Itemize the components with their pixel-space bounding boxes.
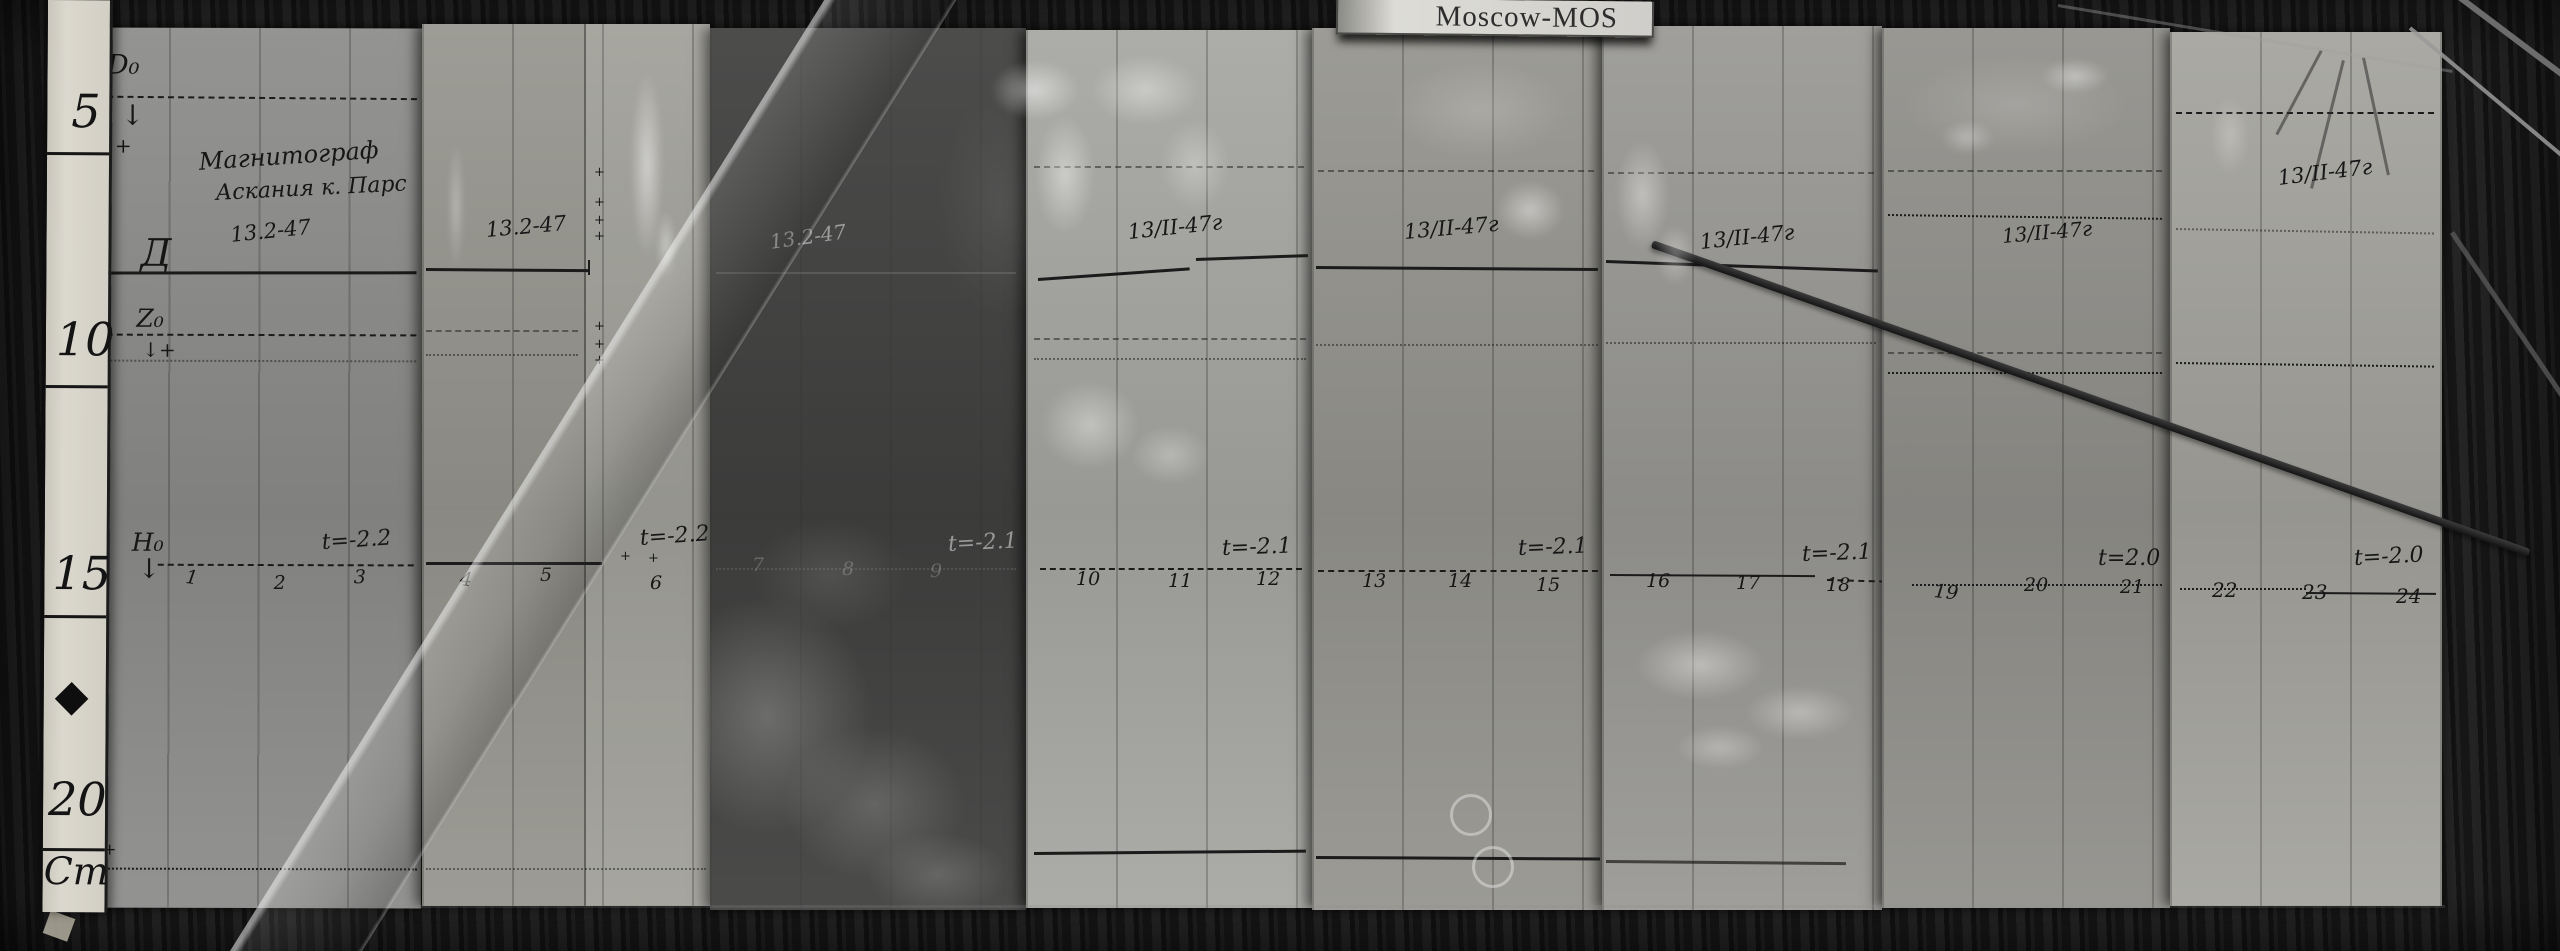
z-baseline-line: [1034, 338, 1306, 340]
z-baseline-line: [1888, 352, 2162, 354]
down-arrow-mark: ↓: [121, 102, 145, 130]
h-baseline-line: [2180, 588, 2306, 590]
hour-number: 11: [1168, 572, 1192, 591]
h-baseline-line: [426, 562, 602, 565]
temperature-note: t=-2.1: [1802, 542, 1872, 566]
record-strip-4: 13/II-47г t=-2.1 10 11 12: [1026, 30, 1312, 908]
punch-hole: [1472, 846, 1514, 888]
hour-number: 21: [2120, 578, 2144, 597]
registration-mark: +: [594, 354, 605, 367]
hour-number: 10: [1076, 570, 1100, 589]
d-trace-line: [1196, 254, 1308, 261]
temperature-note: t=-2.2: [639, 523, 710, 550]
hour-number: 12: [1256, 570, 1280, 589]
d-baseline-line: [1318, 170, 1594, 172]
ruler-scale: 5 10 15 20 ◆ Cm: [38, 0, 113, 912]
ruler-tick-line: [46, 385, 108, 388]
d-trace-line: [1038, 267, 1190, 281]
h0-baseline-label: H₀: [132, 530, 164, 555]
registration-mark: +: [594, 214, 605, 227]
bottom-trace-line: [97, 868, 417, 871]
bottom-trace-line: [1606, 860, 1846, 865]
wire: [2444, 0, 2560, 104]
record-strip-3-dark: 13.2-47 t=-2.1 7 8 9: [710, 28, 1026, 910]
magnetogram-archive-photo: D₀ ↓ + Магнитограф Аскания к. Парс 13.2-…: [0, 0, 2560, 951]
hour-number: 23: [2302, 582, 2327, 602]
d-trace-line: [716, 272, 1016, 274]
d-baseline-line: [2176, 112, 2434, 114]
ruler-unit-label: Cm: [44, 852, 109, 890]
paper-speck: [43, 910, 76, 941]
ruler-mark-15: 15: [52, 550, 111, 596]
z-trace-line: [1316, 344, 1598, 346]
z-trace-line: [426, 354, 578, 356]
d-baseline-line: [1034, 166, 1304, 168]
hour-number: 22: [2212, 580, 2237, 600]
hour-number: 5: [540, 566, 552, 585]
z-baseline-line: [86, 334, 416, 337]
z-trace-line: [1606, 342, 1876, 344]
strip2-date: 13.2-47: [485, 213, 567, 241]
hour-number: 20: [2024, 576, 2048, 595]
punch-hole: [1450, 794, 1492, 836]
hour-number: 3: [354, 568, 366, 587]
hour-number: 15: [1536, 576, 1560, 595]
strip8-date: 13/II-47г: [2277, 157, 2374, 189]
d-baseline-line: [1888, 170, 2162, 172]
record-strip-7: 13/II-47г t=2.0 19 20 21: [1882, 28, 2170, 908]
d-trace-line: [2176, 228, 2434, 235]
strip1-date: 13.2-47: [230, 217, 312, 246]
hour-number: 7: [752, 556, 764, 575]
bottom-trace-line: [1316, 856, 1600, 860]
h-baseline-line: [158, 564, 414, 567]
z0-baseline-label: Z₀: [136, 306, 163, 331]
hour-number: 2: [274, 574, 286, 593]
baseline-tick-mark: +: [620, 550, 631, 563]
z-arrow-plus-mark: ↓+: [142, 340, 176, 360]
strip-sliver-overlay: [586, 24, 710, 906]
bottom-trace-line: [1034, 850, 1306, 855]
record-strip-1: D₀ ↓ + Магнитограф Аскания к. Парс 13.2-…: [77, 28, 423, 909]
record-strip-2: 13.2-47 + + + + + + + t=-2.2 + + 4 5 6: [422, 24, 710, 906]
temperature-note: t=2.0: [2098, 548, 2160, 570]
declination-label: Д: [141, 234, 172, 272]
ruler-mark-20: 20: [48, 776, 107, 822]
hour-number: 1: [184, 568, 199, 589]
hour-number: 24: [2396, 586, 2421, 606]
z-trace-line: [1034, 358, 1306, 360]
diamond-marker-icon: ◆: [55, 674, 89, 718]
ruler-mark-5: 5: [71, 88, 101, 134]
moscow-mos-label-text: Moscow-MOS: [1435, 0, 1618, 35]
pencil-scribble: [2275, 50, 2322, 135]
bottom-trace-line: [426, 868, 706, 870]
hour-number: 6: [650, 574, 662, 593]
hour-number: 13: [1362, 572, 1386, 591]
trace-end-tick: [588, 260, 590, 275]
d-trace-line: [1316, 266, 1598, 271]
hour-number: 18: [1826, 576, 1850, 595]
h-baseline-line: [1610, 574, 1815, 577]
strip5-date: 13/II-47г: [1403, 214, 1499, 243]
registration-mark: +: [594, 338, 605, 351]
ruler-mark-10: 10: [56, 316, 115, 362]
board-edge-line: [75, 905, 2445, 908]
z-baseline-line: [426, 330, 578, 332]
z-trace-line: [2176, 362, 2434, 368]
hour-number: 14: [1448, 572, 1472, 591]
hour-number: 17: [1736, 574, 1760, 593]
ruler-tick-line: [44, 615, 106, 618]
temperature-note: t=-2.1: [947, 530, 1018, 556]
d-baseline-line: [1608, 172, 1874, 174]
moscow-mos-label: Moscow-MOS: [1336, 0, 1654, 38]
hour-number: 4: [459, 570, 473, 590]
hour-number: 19: [1933, 582, 1959, 603]
temperature-note: t=-2.2: [321, 528, 392, 555]
wire: [2450, 231, 2560, 449]
record-strip-8: 13/II-47г t=-2.0 22 23 24: [2170, 32, 2442, 906]
hour-number: 9: [930, 562, 942, 581]
plus-mark: +: [115, 136, 132, 156]
registration-mark: +: [594, 230, 605, 243]
instrument-title-line2: Аскания к. Парс: [215, 173, 407, 204]
d-trace-line: [426, 268, 588, 272]
temperature-note: t=-2.1: [1222, 536, 1292, 560]
ruler-tick-line: [47, 152, 109, 155]
hour-number: 16: [1646, 572, 1670, 591]
h-baseline-line: [716, 568, 1016, 570]
record-strip-6: 13/II-47г t=-2.1 16 17 18: [1602, 26, 1882, 910]
z-trace-line: [86, 360, 416, 363]
registration-mark: +: [594, 320, 605, 333]
d-trace-line: [1888, 214, 2162, 220]
strip4-date: 13/II-47г: [1127, 212, 1224, 243]
h-down-arrow-mark: ↓: [138, 556, 161, 583]
d-trace-line: [87, 271, 417, 274]
strip6-date: 13/II-47г: [1699, 222, 1796, 253]
temperature-note: t=-2.0: [2353, 544, 2424, 570]
registration-mark: +: [594, 166, 605, 179]
instrument-title-line1: Магнитограф: [198, 138, 379, 174]
registration-mark: +: [594, 196, 605, 209]
light-mottling: [710, 28, 1026, 910]
temperature-note: t=-2.1: [1518, 536, 1588, 560]
strip7-date: 13/II-47г: [2001, 218, 2093, 246]
record-strip-5: 13/II-47г t=-2.1 13 14 15: [1312, 28, 1602, 910]
baseline-tick-mark: +: [648, 552, 659, 565]
